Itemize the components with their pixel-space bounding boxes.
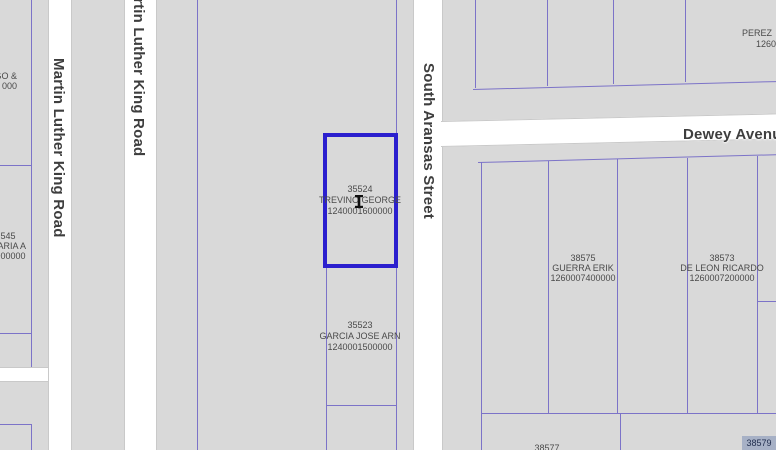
- parcel-boundary-line: [326, 405, 397, 406]
- road-bottom-left: [0, 367, 48, 382]
- parcel-boundary-line: [0, 424, 31, 425]
- parcel-id: 38577: [534, 443, 559, 450]
- parcel-boundary-line: [0, 333, 31, 334]
- parcel-map-canvas[interactable]: Martin Luther King Road rtin Luther King…: [0, 0, 776, 450]
- parcel-label-fragment: GO &: [0, 71, 17, 81]
- parcel-account: 1260007400000: [550, 273, 615, 283]
- ibeam-cursor-icon: [354, 195, 364, 208]
- parcel-boundary-line: [31, 424, 32, 450]
- parcel-label-fragment: 5900000: [0, 251, 30, 261]
- parcel-label-fragment: MARIA A: [0, 241, 30, 251]
- parcel-owner: GARCIA JOSE ARN: [319, 331, 400, 342]
- parcel-label-38577: 38577: [534, 443, 559, 450]
- street-label-martin-luther-king-center: rtin Luther King Road: [130, 0, 147, 156]
- parcel-boundary-line: [326, 267, 327, 450]
- parcel-boundary-line: [547, 0, 548, 86]
- parcel-label-de-leon: 38573 DE LEON RICARDO 1260007200000: [680, 253, 764, 283]
- parcel-label-edge-mid-left: 545 MARIA A 5900000: [0, 231, 30, 261]
- parcel-id: 38573: [680, 253, 764, 263]
- parcel-boundary-line: [687, 158, 688, 413]
- parcel-id: 35523: [319, 320, 400, 331]
- parcel-account: 1240001500000: [319, 342, 400, 353]
- parcel-label-edge-top-left: GO & 000: [0, 71, 17, 91]
- parcel-boundary-line: [481, 413, 776, 414]
- parcel-boundary-line: [620, 413, 621, 450]
- street-label-dewey-avenue: Dewey Avenue: [683, 126, 776, 143]
- parcel-boundary-line: [396, 0, 397, 133]
- parcel-boundary-line: [197, 0, 198, 450]
- highlighted-parcel-38579[interactable]: 38579: [742, 436, 776, 450]
- street-label-south-aransas: South Aransas Street: [420, 63, 437, 219]
- parcel-boundary-line: [613, 0, 614, 84]
- parcel-boundary-line: [473, 81, 776, 90]
- parcel-boundary-line: [481, 162, 482, 450]
- parcel-label-garcia: 35523 GARCIA JOSE ARN 1240001500000: [319, 320, 400, 353]
- parcel-label-fragment: 545: [0, 231, 30, 241]
- parcel-boundary-line: [396, 267, 397, 450]
- parcel-account: 1260: [742, 39, 776, 50]
- parcel-owner: GUERRA ERIK: [550, 263, 615, 273]
- parcel-boundary-line: [478, 154, 776, 163]
- parcel-boundary-line: [685, 0, 686, 82]
- parcel-boundary-line: [475, 0, 476, 88]
- parcel-boundary-line: [0, 165, 31, 166]
- parcel-boundary-line: [31, 0, 32, 367]
- parcel-label-fragment: 000: [0, 81, 17, 91]
- parcel-boundary-line: [548, 161, 549, 413]
- parcel-boundary-line: [757, 301, 776, 302]
- parcel-account: 1260007200000: [680, 273, 764, 283]
- parcel-boundary-line: [757, 156, 758, 413]
- parcel-id: 38575: [550, 253, 615, 263]
- parcel-id: 35524: [319, 184, 401, 195]
- parcel-owner: DE LEON RICARDO: [680, 263, 764, 273]
- parcel-boundary-line: [617, 159, 618, 413]
- parcel-label-guerra: 38575 GUERRA ERIK 1260007400000: [550, 253, 615, 283]
- parcel-label-perez: PEREZ 1260: [742, 28, 776, 50]
- street-label-martin-luther-king-left: Martin Luther King Road: [50, 58, 67, 238]
- parcel-owner: PEREZ: [742, 28, 776, 39]
